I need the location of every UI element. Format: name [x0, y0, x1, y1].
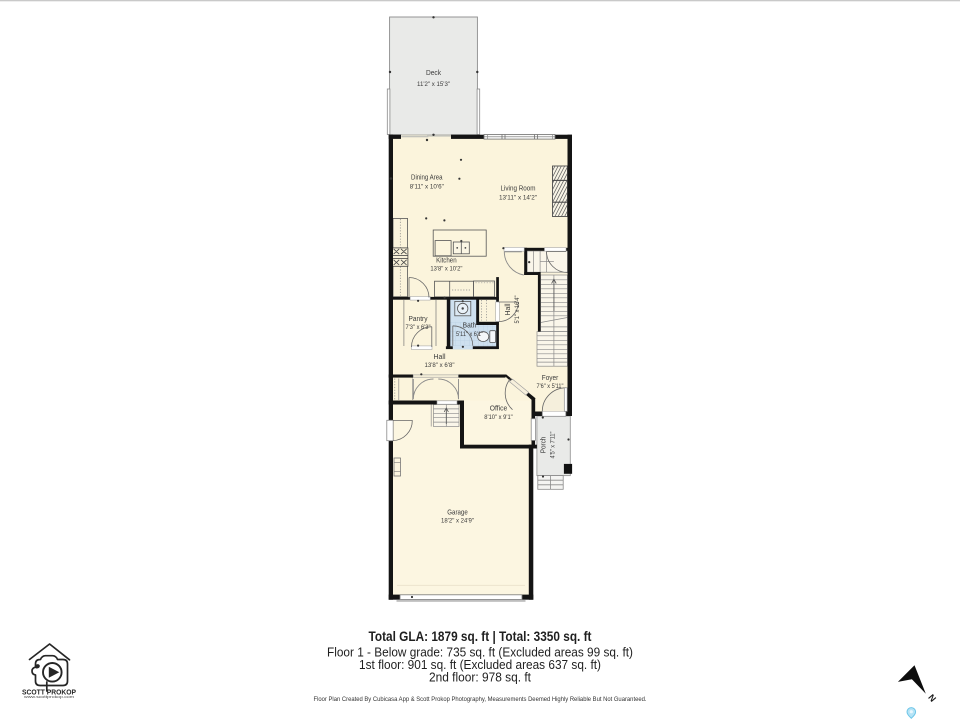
svg-text:2nd floor: 978 sq. ft: 2nd floor: 978 sq. ft: [429, 669, 531, 684]
svg-text:5'11" x 6'1": 5'11" x 6'1": [456, 331, 483, 338]
svg-text:Floor Plan Created By Cubicasa: Floor Plan Created By Cubicasa App & Sco…: [314, 696, 647, 703]
svg-text:Living Room: Living Room: [501, 186, 536, 193]
svg-text:www.scottprokop.com: www.scottprokop.com: [24, 695, 75, 699]
svg-text:4'5" x 7'11": 4'5" x 7'11": [550, 432, 557, 459]
svg-text:13'11" x 14'2": 13'11" x 14'2": [499, 195, 537, 202]
svg-text:Dining Area: Dining Area: [411, 174, 443, 181]
svg-text:Garage: Garage: [447, 510, 468, 517]
svg-text:13'8" x 6'8": 13'8" x 6'8": [425, 362, 455, 369]
svg-text:18'2" x 24'9": 18'2" x 24'9": [441, 518, 474, 525]
svg-text:Office: Office: [490, 406, 508, 413]
svg-text:Bath: Bath: [463, 323, 477, 330]
svg-text:8'10" x 9'1": 8'10" x 9'1": [484, 414, 513, 421]
svg-text:Foyer: Foyer: [542, 375, 559, 382]
svg-text:7'3" x 6'3": 7'3" x 6'3": [406, 324, 431, 331]
svg-text:7'6" x 5'11": 7'6" x 5'11": [537, 383, 564, 390]
svg-text:Total GLA: 1879 sq. ft | Total: Total GLA: 1879 sq. ft | Total: 3350 sq.…: [369, 629, 592, 644]
svg-text:Pantry: Pantry: [409, 316, 428, 323]
svg-text:Deck: Deck: [426, 70, 441, 77]
svg-text:11'2" x 15'3": 11'2" x 15'3": [417, 81, 450, 88]
svg-text:13'8" x 10'2": 13'8" x 10'2": [430, 265, 462, 272]
svg-text:Hall: Hall: [505, 303, 512, 315]
svg-text:Hall: Hall: [434, 354, 446, 361]
svg-text:Porch: Porch: [541, 437, 548, 454]
svg-text:5'1" x 16'4": 5'1" x 16'4": [514, 296, 521, 324]
svg-text:8'11" x 10'6": 8'11" x 10'6": [410, 183, 444, 190]
svg-text:Kitchen: Kitchen: [436, 257, 457, 264]
